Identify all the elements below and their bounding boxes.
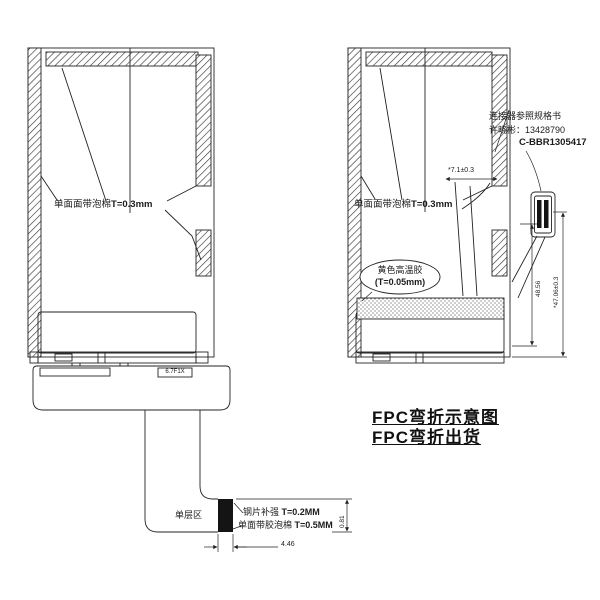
- dim-4-46-label: 4.46: [281, 541, 295, 549]
- film-note-right: 单面面带泡棉T=0.3mm: [354, 199, 452, 210]
- connector-part-number: C-BBR1305417: [519, 137, 587, 148]
- left-fpc-outline: [33, 366, 230, 410]
- left-panel-outline: [38, 312, 196, 353]
- connector-spec-note: 连接器参照规格书 许晓彬：13428790: [489, 110, 565, 137]
- dim-0-81-label: 0.81: [339, 515, 347, 528]
- dim-47-06-label: *47.06±0.3: [553, 277, 561, 308]
- fpc-tail-outer: [200, 410, 218, 499]
- caption-line1: FPC弯折示意图: [372, 408, 499, 428]
- single-layer-label: 单层区: [175, 510, 202, 521]
- left-hatch-band-top: [46, 52, 198, 66]
- stiffener-note: 钢片补强 T=0.2MM: [243, 507, 320, 518]
- dim-4-46-lines: [204, 534, 278, 552]
- caption-line2: FPC弯折出货: [372, 428, 481, 448]
- dim-7-1-label: *7.1±0.3: [448, 167, 474, 175]
- fpc-marking-label: 6.7F1X: [160, 369, 190, 376]
- right-hatch-band-top: [366, 52, 492, 66]
- dim-48-56-label: 48.56: [535, 281, 543, 297]
- left-hatch-band-left: [28, 48, 41, 357]
- right-hatch-band-right-lower: [492, 230, 507, 276]
- left-hatch-band-right-upper: [196, 55, 211, 186]
- foam-note: 单面带胶泡棉 T=0.5MM: [238, 520, 333, 531]
- drawing-canvas: 单面面带泡棉T=0.3mm 单面面带泡棉T=0.3mm 黄色高温胶 (T=0.0…: [0, 0, 600, 600]
- connector-contact-note: 许晓彬：13428790: [489, 124, 565, 138]
- stiffener-block: [218, 499, 233, 532]
- connector-detail: [531, 192, 555, 237]
- left-view-drawing: [28, 48, 352, 552]
- film-note-left: 单面面带泡棉T=0.3mm: [54, 199, 152, 210]
- tape-band: [357, 298, 504, 319]
- tape-balloon-label: 黄色高温胶 (T=0.05mm): [367, 264, 433, 288]
